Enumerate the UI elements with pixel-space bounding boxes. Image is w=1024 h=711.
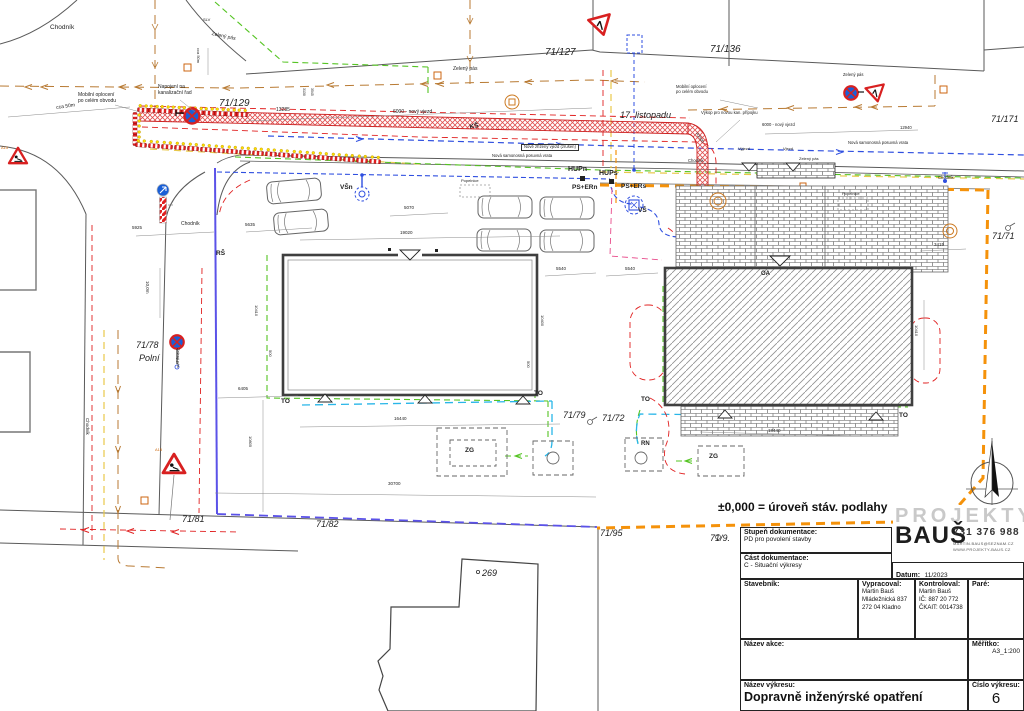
cell-cast: Část dokumentace: C - Situační výkresy [740, 553, 892, 579]
cell-nazev-akce: Název akce: [740, 639, 968, 680]
no-stopping-sign-2 [844, 86, 864, 100]
cell-stavebnik: Stavebník: [740, 579, 858, 639]
vypracoval-line-1: Martin Bauš [862, 588, 911, 596]
cell-stupen: Stupeň dokumentace: PD pro povolení stav… [740, 527, 892, 553]
site-plan-page: ChodníkSLVZelený pásMobilní oplocení po … [0, 0, 1024, 711]
yield-sign-top [588, 14, 614, 37]
stupen-value: PD pro povolení stavby [744, 536, 888, 543]
cast-value: C - Situační výkresy [744, 562, 888, 569]
building-269 [378, 559, 538, 711]
cislo-vykresu-label: Číslo výkresu: [972, 682, 1020, 689]
cell-cislo-vykresu: Číslo výkresu: 6 [968, 680, 1024, 711]
stavebnik-label: Stavebník: [744, 581, 854, 588]
cell-kontroloval: Kontroloval: Martin Bauš IČ: 887 20 772 … [915, 579, 968, 639]
kontroloval-line-3: ČKAIT: 0014738 [919, 604, 964, 612]
building-existing-right [665, 256, 912, 405]
nazev-vykresu-label: Název výkresu: [744, 682, 964, 689]
a15-sign-bottom [163, 454, 185, 520]
a15-sign-left [9, 148, 27, 163]
vs-shaft-new [355, 173, 369, 201]
cell-nazev-vykresu: Název výkresu: Dopravně inženýrské opatř… [740, 680, 968, 711]
nazev-akce-label: Název akce: [744, 641, 964, 648]
cell-pare: Paré: [968, 579, 1024, 639]
vypracoval-label: Vypracoval: [862, 581, 911, 588]
logo-phone: 731 376 988 [953, 527, 1020, 538]
logo-web: WWW.PROJEKTY-BAUS.CZ [953, 547, 1011, 552]
kontroloval-line-2: IČ: 887 20 772 [919, 596, 964, 604]
parked-cars [266, 178, 594, 252]
company-logo: PROJEKTY BAUŠ 731 376 988 MARTIN.BAUS@SE… [893, 505, 1024, 560]
pare-label: Paré: [972, 581, 1020, 588]
yield-sign-right [865, 84, 886, 103]
kontroloval-line-1: Martin Bauš [919, 588, 964, 596]
nazev-vykresu-value: Dopravně inženýrské opatření [744, 690, 964, 704]
building-new-left [283, 248, 537, 395]
no-stopping-sign-3 [170, 335, 184, 369]
meritko-label: Měřítko: [972, 641, 1020, 648]
datum-label: Datum: [896, 572, 920, 579]
cell-datum: Datum: 11/2023 [892, 562, 1024, 579]
datum-value: 11/2023 [925, 572, 948, 579]
vypracoval-line-3: 272 04 Kladno [862, 604, 911, 612]
vs-shaft-existing [625, 196, 643, 214]
trench [140, 110, 708, 186]
cell-vypracoval: Vypracoval: Martin Bauš Mládežnická 837 … [858, 579, 915, 639]
cell-meritko: Měřítko: A3_1:200 [968, 639, 1024, 680]
cast-label: Část dokumentace: [744, 555, 888, 562]
cislo-vykresu-value: 6 [972, 690, 1020, 707]
level-annotation: ±0,000 = úroveň stáv. podlahy [718, 500, 887, 514]
keep-right-beacon [157, 184, 173, 223]
blue-road-line [268, 35, 1024, 172]
stupen-label: Stupeň dokumentace: [744, 529, 888, 536]
kontroloval-label: Kontroloval: [919, 581, 964, 588]
meritko-value: A3_1:200 [972, 648, 1020, 655]
vypracoval-line-2: Mládežnická 837 [862, 596, 911, 604]
logo-email: MARTIN.BAUS@SEZNAM.CZ [953, 541, 1014, 546]
neighbor-buildings [0, 190, 36, 432]
